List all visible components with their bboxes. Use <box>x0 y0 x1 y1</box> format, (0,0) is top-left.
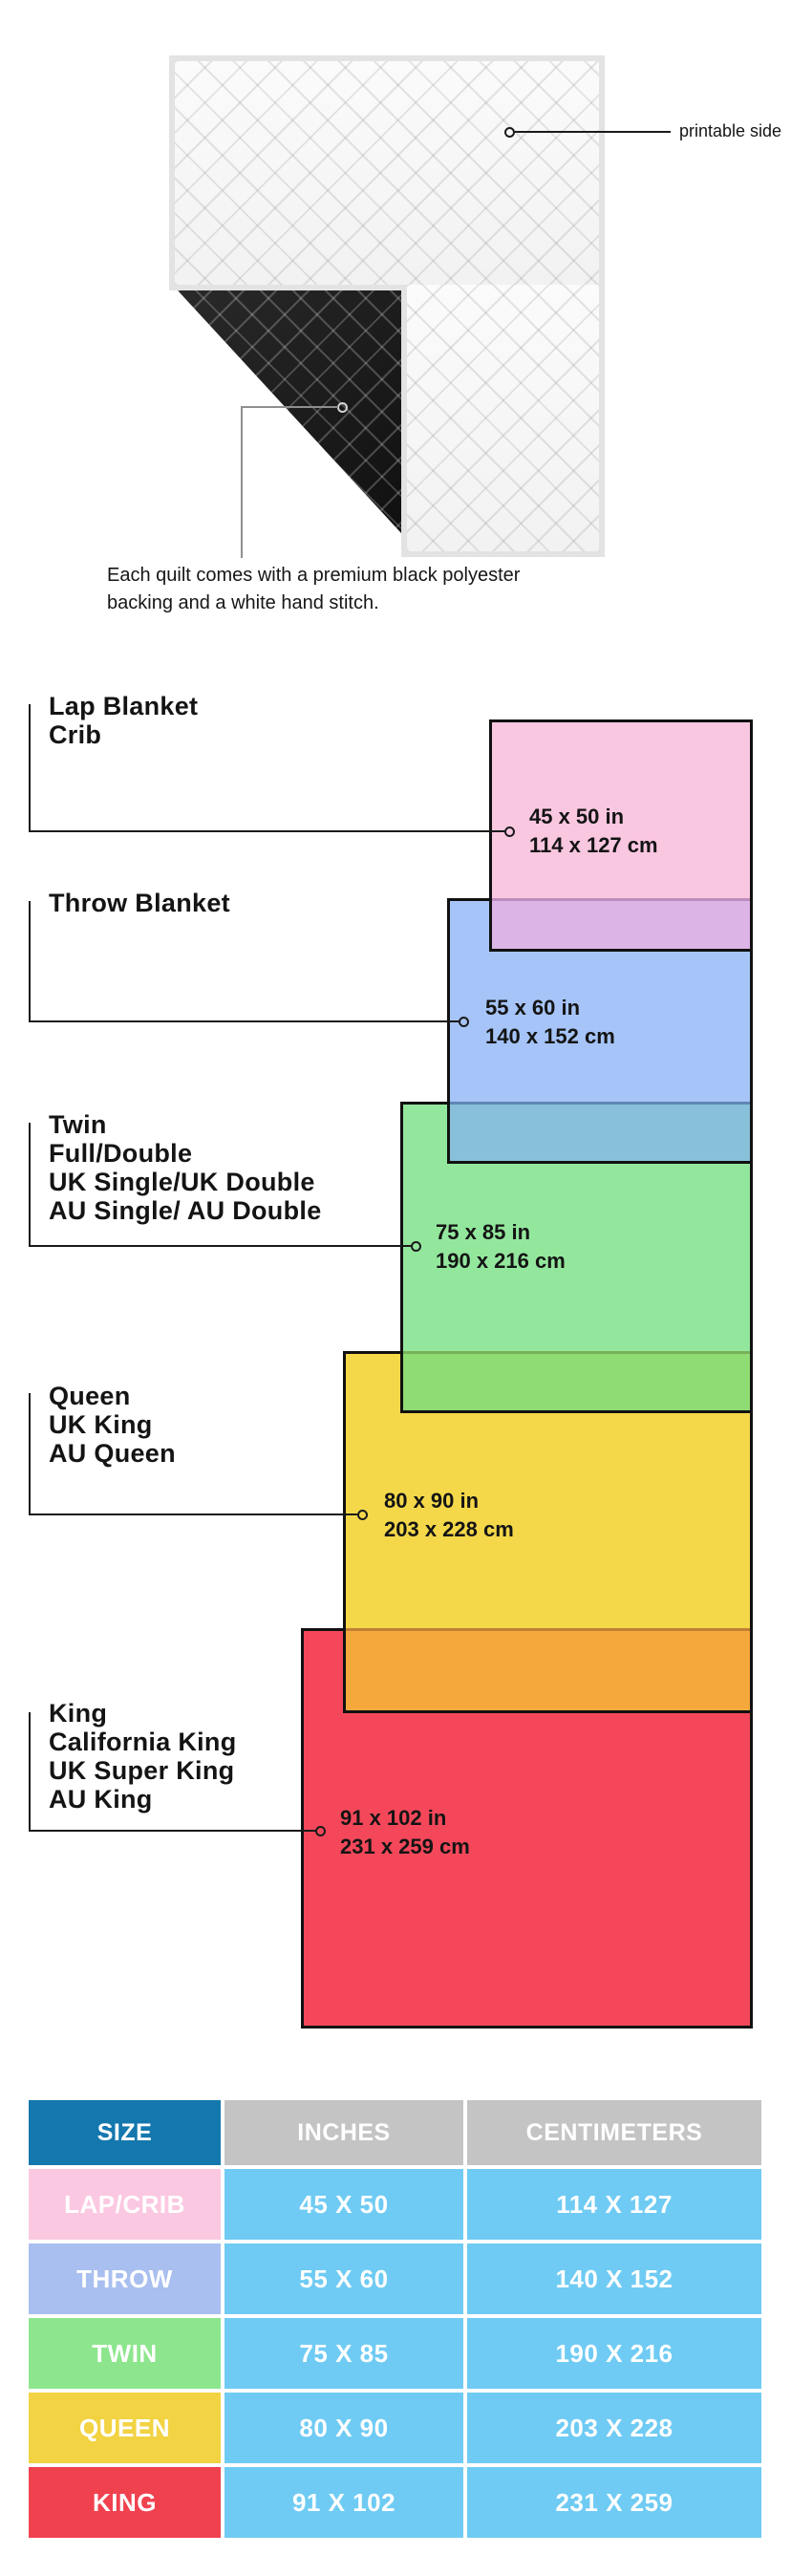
row-lap-centimeters: 114 X 127 <box>467 2169 761 2240</box>
row-throw-centimeters: 140 X 152 <box>467 2243 761 2314</box>
twin-callout-line-v <box>29 1123 31 1247</box>
lap-callout-line-v <box>29 704 31 832</box>
queen-king-overlap <box>346 1628 750 1710</box>
row-queen-centimeters: 203 X 228 <box>467 2393 761 2463</box>
throw-twin-overlap <box>450 1102 750 1161</box>
black-backing-callout-line-v <box>241 406 243 558</box>
queen-callout-line-v <box>29 1393 31 1515</box>
queen-marker-dot <box>357 1510 368 1520</box>
twin-callout-line-h <box>29 1245 411 1247</box>
black-backing-marker-dot <box>337 402 348 413</box>
twin-queen-overlap <box>403 1351 750 1410</box>
king-callout-line-v <box>29 1712 31 1832</box>
lap-marker-dot <box>504 826 515 837</box>
quilt-printable-side-lower <box>401 285 605 557</box>
lap-dimensions: 45 x 50 in 114 x 127 cm <box>529 803 658 860</box>
king-callout-line-h <box>29 1830 315 1832</box>
quilt-size-infographic: printable side Each quilt comes with a p… <box>0 0 791 2576</box>
quilt-black-backing-fold <box>178 290 401 533</box>
queen-label: Queen UK King AU Queen <box>49 1382 176 1468</box>
twin-label: Twin Full/Double UK Single/UK Double AU … <box>49 1110 322 1225</box>
row-queen-size: QUEEN <box>29 2393 221 2463</box>
black-backing-callout-line-h <box>241 406 338 408</box>
king-label: King California King UK Super King AU Ki… <box>49 1699 237 1814</box>
table-header-inches: INCHES <box>224 2100 463 2165</box>
twin-marker-dot <box>411 1241 421 1252</box>
row-twin-inches: 75 X 85 <box>224 2318 463 2389</box>
quilt-printable-side <box>169 55 605 290</box>
row-throw-size: THROW <box>29 2243 221 2314</box>
row-throw-inches: 55 X 60 <box>224 2243 463 2314</box>
size-table: SIZE INCHES CENTIMETERS LAP/CRIB 45 X 50… <box>29 2100 761 2538</box>
queen-dimensions: 80 x 90 in 203 x 228 cm <box>384 1487 514 1544</box>
row-king-size: KING <box>29 2467 221 2538</box>
throw-callout-line-h <box>29 1020 459 1022</box>
printable-side-marker-dot <box>504 127 515 138</box>
table-header-centimeters: CENTIMETERS <box>467 2100 761 2165</box>
twin-dimensions: 75 x 85 in 190 x 216 cm <box>436 1218 566 1276</box>
row-lap-inches: 45 X 50 <box>224 2169 463 2240</box>
row-queen-inches: 80 X 90 <box>224 2393 463 2463</box>
queen-callout-line-h <box>29 1513 357 1515</box>
printable-side-label: printable side <box>679 118 784 144</box>
lap-crib-label: Lap Blanket Crib <box>49 692 198 749</box>
table-header-size: SIZE <box>29 2100 221 2165</box>
row-king-inches: 91 X 102 <box>224 2467 463 2538</box>
king-dimensions: 91 x 102 in 231 x 259 cm <box>340 1804 470 1861</box>
throw-label: Throw Blanket <box>49 889 230 917</box>
throw-dimensions: 55 x 60 in 140 x 152 cm <box>485 994 615 1051</box>
row-twin-size: TWIN <box>29 2318 221 2389</box>
row-lap-size: LAP/CRIB <box>29 2169 221 2240</box>
throw-marker-dot <box>459 1017 469 1027</box>
king-marker-dot <box>315 1826 326 1836</box>
lap-throw-overlap <box>492 898 750 949</box>
quilt-caption: Each quilt comes with a premium black po… <box>107 562 537 617</box>
lap-callout-line-h <box>29 830 504 832</box>
throw-callout-line-v <box>29 901 31 1022</box>
printable-side-callout-line <box>515 131 671 133</box>
row-twin-centimeters: 190 X 216 <box>467 2318 761 2389</box>
row-king-centimeters: 231 X 259 <box>467 2467 761 2538</box>
